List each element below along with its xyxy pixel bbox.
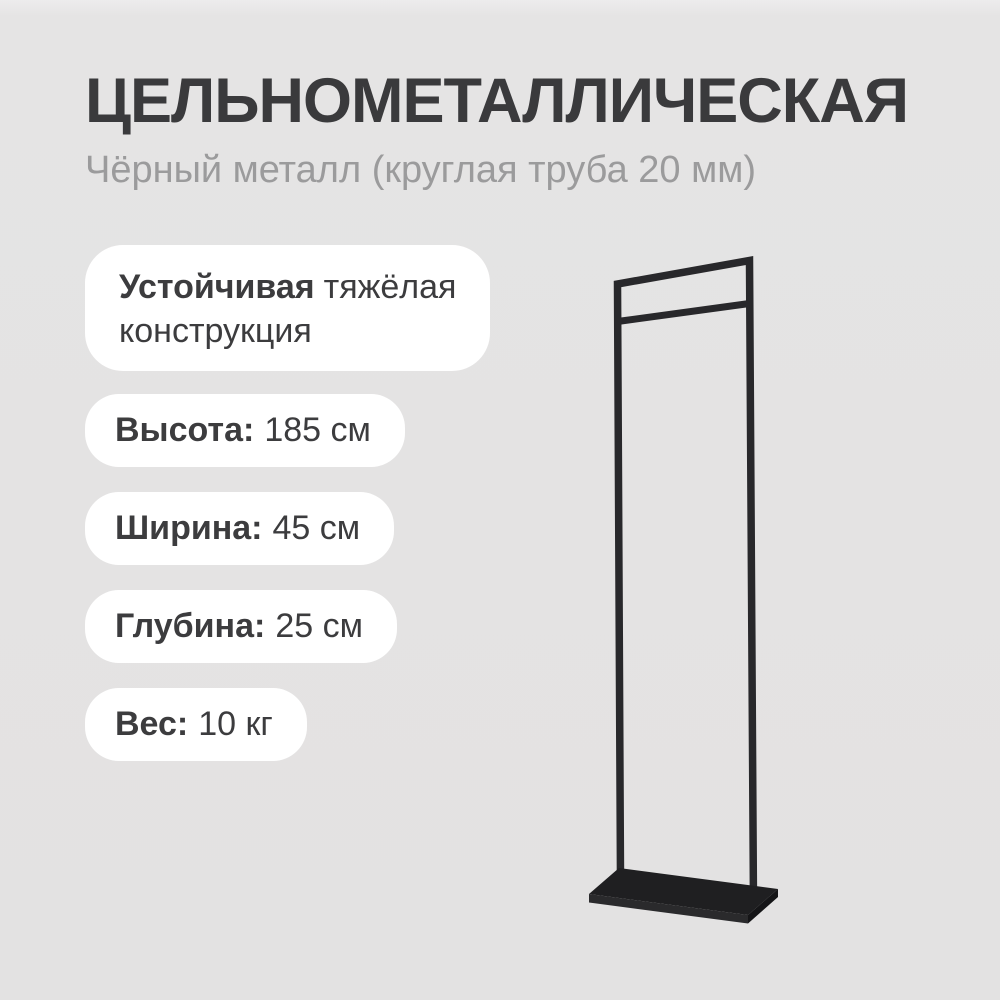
spec-pill-stack: Высота:185 см Ширина:45 см Глубина:25 см…	[85, 394, 405, 761]
rack-base-top	[589, 868, 778, 915]
spec-value: 25 см	[275, 607, 363, 646]
spec-label: Ширина:	[115, 509, 263, 548]
spec-pill-weight: Вес:10 кг	[85, 688, 307, 761]
spec-pill-depth: Глубина:25 см	[85, 590, 397, 663]
rack-hanger-bar-icon	[618, 304, 750, 322]
spec-value: 45 см	[273, 509, 361, 548]
feature-card-line1-rest: тяжёлая	[324, 268, 457, 306]
spec-value: 185 см	[264, 411, 371, 450]
spec-pill-width: Ширина:45 см	[85, 492, 394, 565]
feature-card-bold-text: Устойчивая	[119, 268, 315, 306]
spec-value: 10 кг	[198, 705, 273, 744]
rack-frame	[618, 261, 754, 907]
rack-base-side	[748, 889, 778, 924]
page-background: ЦЕЛЬНОМЕТАЛЛИЧЕСКАЯ Чёрный металл (кругл…	[0, 0, 1000, 1000]
spec-pill-height: Высота:185 см	[85, 394, 405, 467]
product-title: ЦЕЛЬНОМЕТАЛЛИЧЕСКАЯ	[85, 70, 908, 133]
feature-card-line1: Устойчиваятяжёлая	[119, 265, 456, 309]
product-subtitle: Чёрный металл (круглая труба 20 мм)	[85, 148, 756, 192]
spec-label: Вес:	[115, 705, 188, 744]
rack-base-front	[589, 894, 748, 924]
feature-card: Устойчиваятяжёлая конструкция	[85, 245, 490, 371]
feature-card-line2: конструкция	[119, 309, 456, 353]
spec-label: Глубина:	[115, 607, 265, 646]
spec-label: Высота:	[115, 411, 254, 450]
